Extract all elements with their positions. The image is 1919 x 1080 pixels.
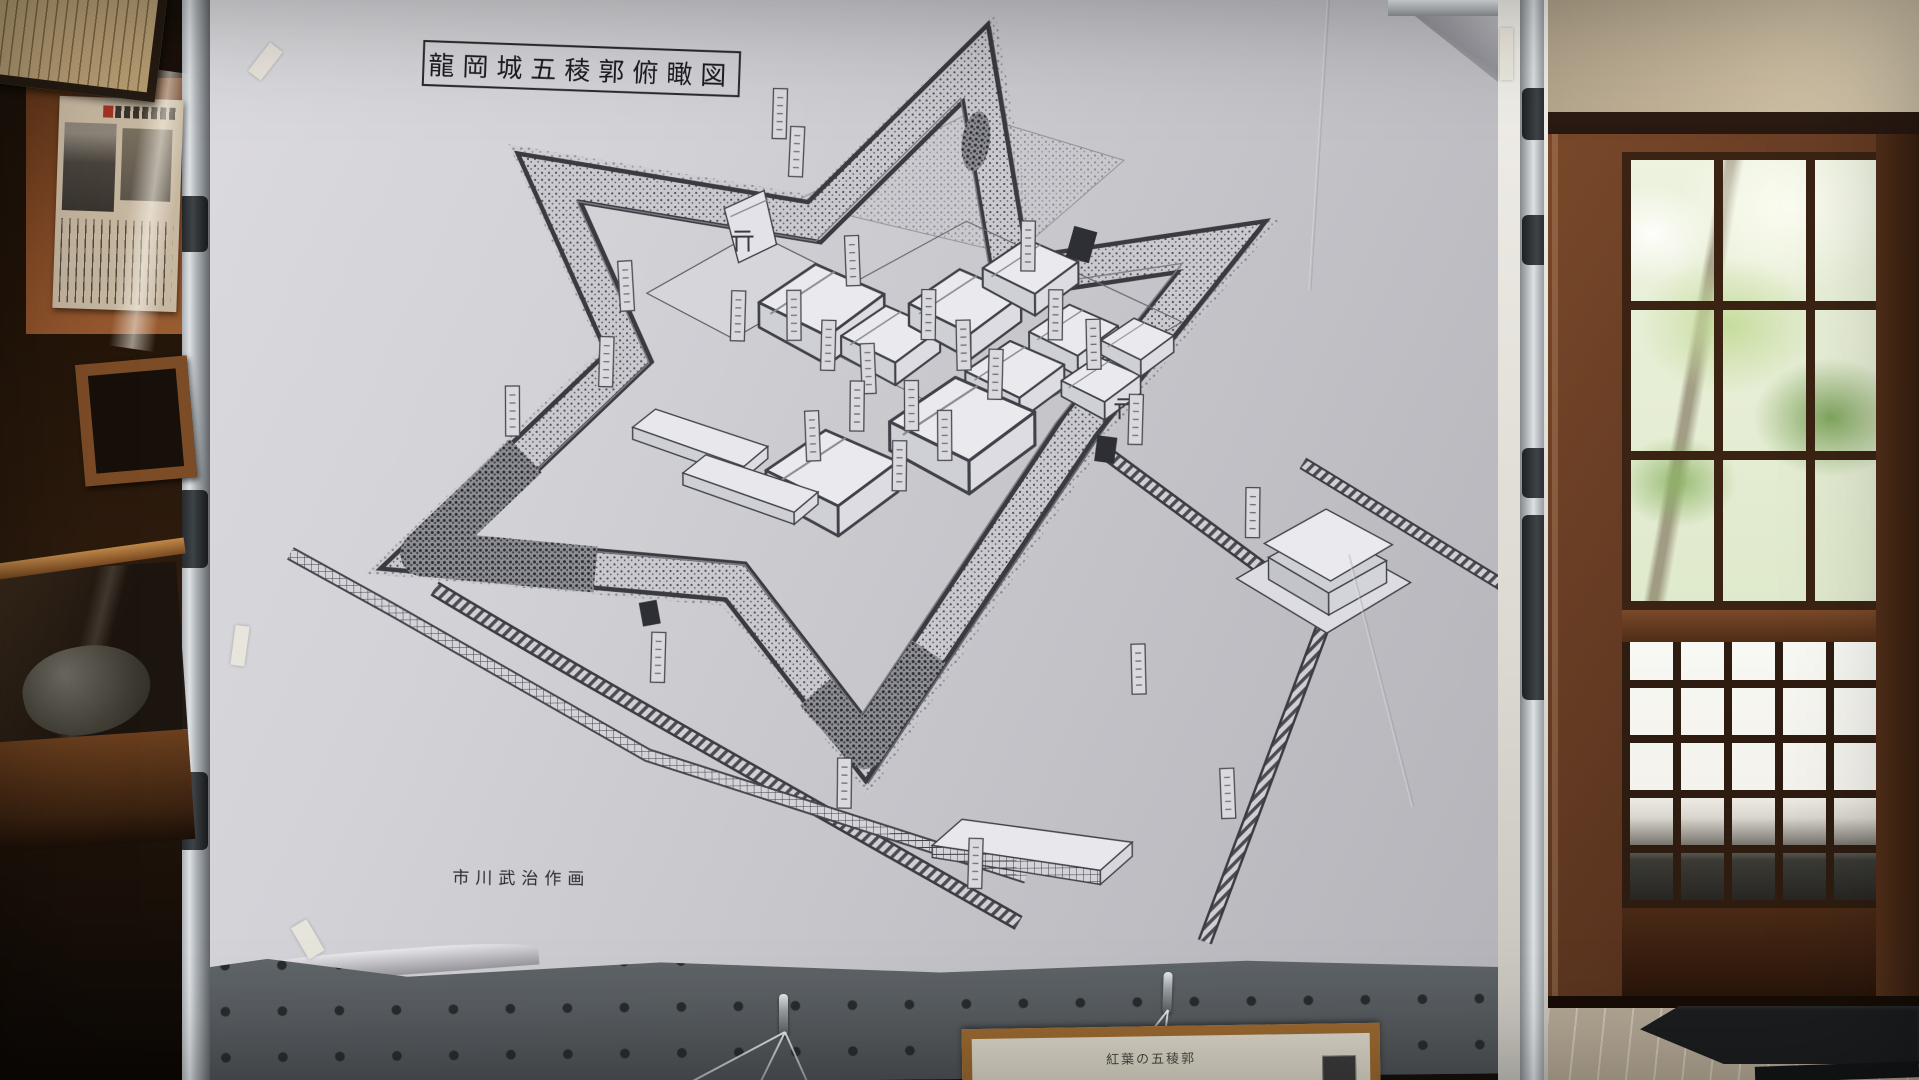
star-fort-drawing	[175, 0, 1513, 983]
poster-title: 龍岡城五稜郭俯瞰図	[428, 45, 735, 93]
door-glass-lower	[1622, 642, 1876, 908]
museum-room-photo: 紅葉の五稜郭	[0, 0, 1919, 1080]
wall-strip	[1498, 0, 1520, 1080]
picture-caption: 紅葉の五稜郭	[972, 1046, 1330, 1071]
artist-signature: 市川武治作画	[452, 863, 590, 890]
storehouse	[932, 818, 1132, 885]
door-mid-rail	[1622, 610, 1876, 642]
dark-bastion-sw	[423, 456, 596, 571]
wall-above-door	[1548, 0, 1919, 114]
exhibit-stone	[15, 634, 158, 743]
board-clip	[178, 196, 208, 252]
pegboard-hook	[779, 994, 788, 1036]
pegboard-hook	[1162, 972, 1172, 1014]
door-right-stile	[1876, 134, 1919, 1012]
wooden-frame-piece	[75, 355, 197, 486]
hanging-picture-frame: 紅葉の五稜郭	[962, 1023, 1381, 1080]
door-stile-highlight	[1552, 134, 1558, 1012]
door-lintel-beam	[1548, 112, 1919, 136]
two-story-building	[1236, 509, 1411, 634]
left-wall	[0, 0, 182, 1080]
castle-map-poster: 龍岡城五稜郭俯瞰図 市川武治作画	[175, 0, 1513, 983]
tape-piece	[1500, 28, 1513, 80]
board-clip	[178, 490, 208, 568]
display-case-glass	[0, 561, 188, 743]
case-base	[0, 729, 195, 853]
red-highlight-mark	[103, 105, 113, 117]
display-case	[0, 531, 198, 884]
door-bottom-rail	[1622, 908, 1876, 1010]
small-photo-chip	[1322, 1055, 1356, 1080]
castle-photo	[62, 122, 117, 212]
door-glass-upper-trees	[1622, 152, 1876, 610]
